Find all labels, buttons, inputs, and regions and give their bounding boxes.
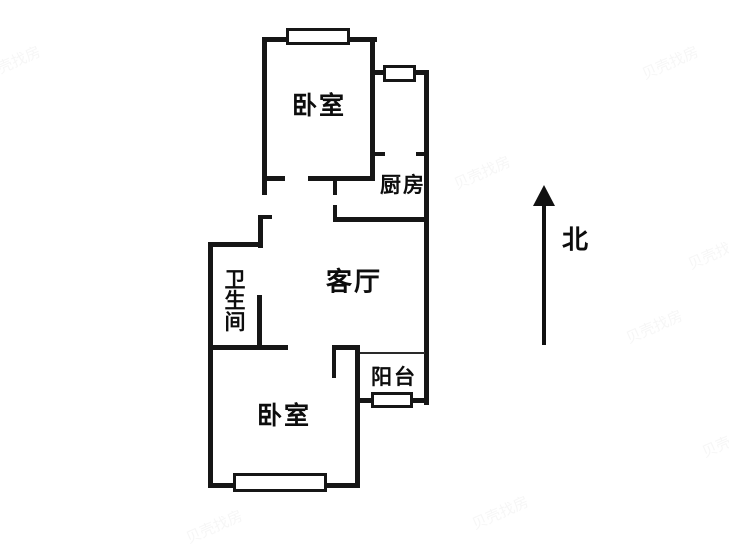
north-label: 北	[562, 220, 588, 257]
floorplan-image: 贝壳找房贝壳找房贝壳找房贝壳找房贝壳找房贝壳找房贝壳找房贝壳找房 卧室厨房客厅卫…	[0, 0, 729, 547]
north-indicator: 北	[0, 0, 729, 547]
north-arrow-head-icon	[533, 185, 555, 206]
north-arrow-shaft	[542, 200, 546, 345]
